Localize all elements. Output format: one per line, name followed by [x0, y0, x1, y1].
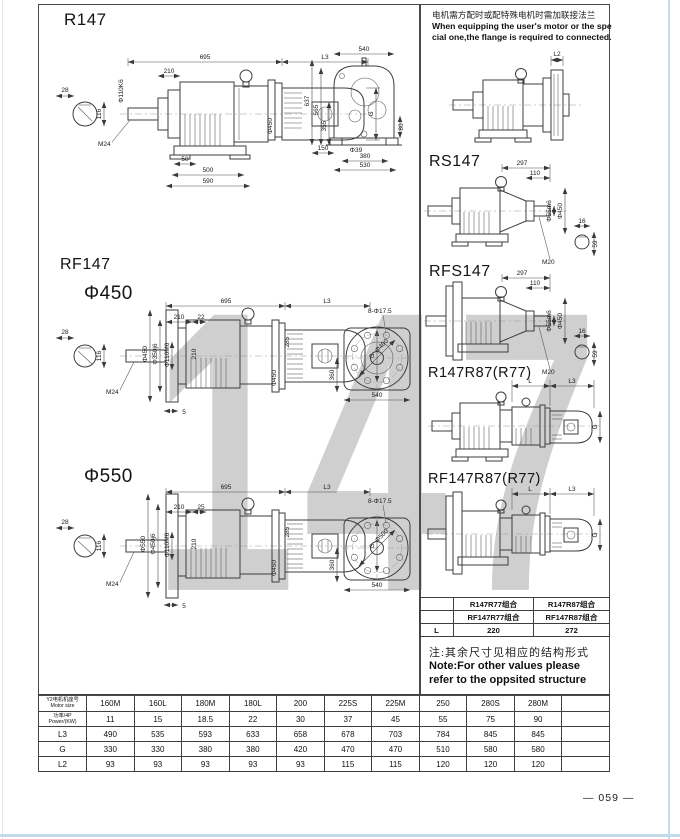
combo-cell — [420, 598, 454, 611]
flange-note-en2: cial one,the flange is required to conne… — [432, 32, 612, 43]
size-cell: 470 — [372, 742, 420, 757]
size-cell: 37 — [324, 712, 372, 727]
size-cell: 580 — [514, 742, 562, 757]
flange-note-zh: 电机需方配时或配特殊电机时需加联接法兰 — [432, 10, 612, 21]
page-frame — [38, 4, 610, 696]
size-cell: 115 — [372, 757, 420, 772]
column-divider — [419, 4, 421, 694]
size-cell: 55 — [419, 712, 467, 727]
size-cell: 75 — [467, 712, 515, 727]
combo-cell: 220 — [454, 624, 534, 637]
size-cell: 160M — [87, 695, 135, 712]
size-cell: 470 — [324, 742, 372, 757]
size-cell: 490 — [87, 727, 135, 742]
combo-cell: L — [420, 624, 454, 637]
size-cell — [562, 727, 610, 742]
combo-cell: RF147R87组合 — [534, 611, 610, 624]
combo-cell: 272 — [534, 624, 610, 637]
size-cell: 45 — [372, 712, 420, 727]
size-cell: 280M — [514, 695, 562, 712]
size-cell: 30 — [277, 712, 325, 727]
size-cell: 120 — [419, 757, 467, 772]
size-cell: 115 — [324, 757, 372, 772]
size-cell: 93 — [182, 757, 230, 772]
size-cell: 160L — [134, 695, 182, 712]
size-cell: 580 — [467, 742, 515, 757]
size-cell: 225S — [324, 695, 372, 712]
size-cell: 380 — [229, 742, 277, 757]
size-cell: 658 — [277, 727, 325, 742]
size-cell: 200 — [277, 695, 325, 712]
size-cell: 90 — [514, 712, 562, 727]
combo-row: RF147R77组合 RF147R87组合 — [420, 611, 610, 624]
size-cell: 11 — [87, 712, 135, 727]
size-row-header: 功率/4P Power/(KW) — [39, 712, 87, 727]
size-cell: 250 — [419, 695, 467, 712]
size-cell: 380 — [182, 742, 230, 757]
size-row-header: Y2电机机座号 Motor size — [39, 695, 87, 712]
size-cell — [562, 742, 610, 757]
size-cell: 535 — [134, 727, 182, 742]
size-cell: 845 — [467, 727, 515, 742]
size-cell: 93 — [277, 757, 325, 772]
size-cell: 845 — [514, 727, 562, 742]
size-cell: 593 — [182, 727, 230, 742]
size-cell: 330 — [134, 742, 182, 757]
size-row-g: G 330 330 380 380 420 470 470 510 580 58… — [39, 742, 610, 757]
combo-table: R147R77组合 R147R87组合 RF147R77组合 RF147R87组… — [419, 597, 610, 637]
size-cell — [562, 695, 610, 712]
size-row-power: 功率/4P Power/(KW) 11 15 18.5 22 30 37 45 … — [39, 712, 610, 727]
combo-row: R147R77组合 R147R87组合 — [420, 598, 610, 611]
size-cell: 120 — [514, 757, 562, 772]
size-cell: 703 — [372, 727, 420, 742]
size-row-header: G — [39, 742, 87, 757]
scan-edge-right — [668, 0, 670, 839]
header-line2: Motor size — [39, 703, 86, 709]
size-row-l2: L2 93 93 93 93 93 115 115 120 120 120 — [39, 757, 610, 772]
size-cell: 784 — [419, 727, 467, 742]
combo-cell: R147R87组合 — [534, 598, 610, 611]
structure-note: 注:其余尺寸见相应的结构形式 Note:For other values ple… — [429, 644, 611, 688]
structure-note-zh: 注:其余尺寸见相应的结构形式 — [429, 644, 611, 660]
section-title-rf147: RF147 — [60, 256, 111, 274]
size-cell: 120 — [467, 757, 515, 772]
size-cell — [562, 712, 610, 727]
size-cell: 18.5 — [182, 712, 230, 727]
size-row-l3: L3 490 535 593 633 658 678 703 784 845 8… — [39, 727, 610, 742]
catalog-page: 147 R147 RF147 Φ450 Φ550 RS147 RFS147 R1… — [0, 0, 680, 839]
size-cell: 510 — [419, 742, 467, 757]
size-cell: 330 — [87, 742, 135, 757]
size-cell: 678 — [324, 727, 372, 742]
section-title-r147r87: R147R87(R77) — [428, 365, 532, 381]
combo-row: L 220 272 — [420, 624, 610, 637]
combo-cell: RF147R77组合 — [454, 611, 534, 624]
flange-note-en1: When equipping the user's motor or the s… — [432, 21, 612, 32]
size-cell: 15 — [134, 712, 182, 727]
size-cell: 22 — [229, 712, 277, 727]
structure-note-en1: Note:For other values please — [429, 660, 611, 674]
section-title-phi550: Φ550 — [84, 466, 133, 488]
scan-edge-bottom — [0, 834, 680, 837]
page-number: — 059 — — [583, 792, 634, 804]
size-row-header: L2 — [39, 757, 87, 772]
combo-cell: R147R77组合 — [454, 598, 534, 611]
section-title-rf147r87: RF147R87(R77) — [428, 471, 541, 487]
section-title-rfs147: RFS147 — [429, 263, 491, 281]
size-cell: 93 — [87, 757, 135, 772]
structure-note-en2: refer to the oppsited structure — [429, 674, 611, 688]
size-cell: 180M — [182, 695, 230, 712]
size-cell: 633 — [229, 727, 277, 742]
scan-edge-left — [2, 0, 3, 839]
size-cell: 93 — [134, 757, 182, 772]
power-line2: Power/(KW) — [39, 719, 86, 725]
size-cell: 280S — [467, 695, 515, 712]
size-cell: 225M — [372, 695, 420, 712]
size-cell — [562, 757, 610, 772]
flange-note: 电机需方配时或配特殊电机时需加联接法兰 When equipping the u… — [432, 10, 612, 44]
size-cell: 93 — [229, 757, 277, 772]
combo-cell — [420, 611, 454, 624]
motor-size-table: Y2电机机座号 Motor size 160M 160L 180M 180L 2… — [38, 694, 610, 772]
size-row-motor: Y2电机机座号 Motor size 160M 160L 180M 180L 2… — [39, 695, 610, 712]
section-title-phi450: Φ450 — [84, 283, 133, 305]
section-title-rs147: RS147 — [429, 153, 480, 171]
section-title-r147: R147 — [64, 10, 107, 30]
size-row-header: L3 — [39, 727, 87, 742]
size-cell: 180L — [229, 695, 277, 712]
size-cell: 420 — [277, 742, 325, 757]
